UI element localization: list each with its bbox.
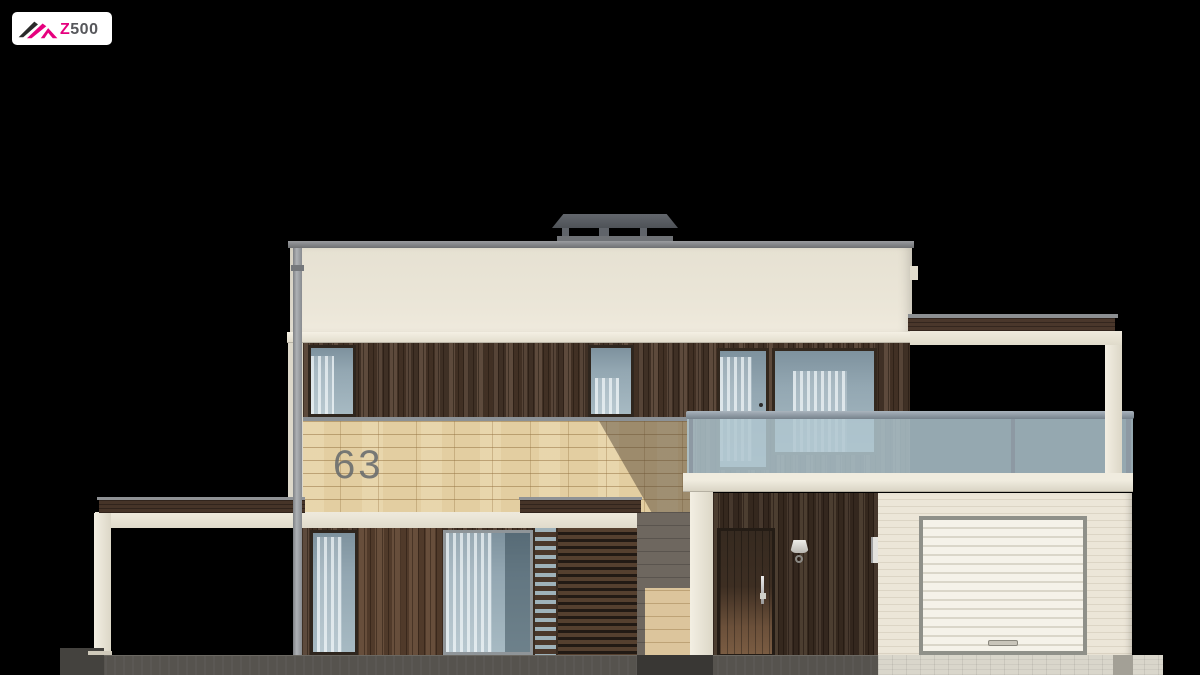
balcony-slab [683,473,1133,492]
pergola-post [1105,345,1122,473]
downspout-pipe [293,248,302,657]
garage-door [919,516,1087,655]
driveway-curb [1113,655,1133,675]
pergola-beam [910,331,1122,345]
logo-letter-z: Z [60,21,70,38]
lower-window-left-glass [313,533,355,652]
lower-window-sliding-curtain [446,533,492,652]
logo-number-500: 500 [70,21,98,38]
upper-window-left [308,345,356,417]
balustrade-post-right [1126,418,1131,473]
balustrade-handrail [686,411,1134,419]
porch-side-wall-lit [645,588,690,655]
lower-window-left-curtain [317,537,342,652]
canvas: Z500 63 [0,0,1200,675]
upper-window-middle-glass [591,348,631,414]
garage-door-roller [923,520,1083,651]
front-door-lock [760,593,766,599]
pergola-fascia [908,318,1115,331]
slat-screen-open [533,528,558,655]
balcony-door-handle [759,403,763,407]
lower-window-sliding-reflection [505,533,530,652]
lower-window-sliding-glass [446,533,530,652]
downspout-bracket [291,265,304,271]
terrace-ground [60,655,878,675]
wall-step-detail [910,266,918,280]
entrance-lamp-ring [795,555,803,563]
garage-door-handle [988,640,1018,646]
canopy-beam [95,512,637,528]
z500-logo-text: Z500 [60,22,98,38]
porch-pillar [690,492,713,655]
louver-screen [558,528,637,655]
z500-roof-icon [17,17,59,41]
roof-edge [288,241,914,248]
upper-window-middle [588,345,634,417]
upper-window-left-glass [311,348,353,414]
carport-roof-fascia [99,500,305,513]
upper-window-left-curtain [311,356,334,414]
balustrade-glass [687,418,1133,473]
carport-curb [88,651,112,655]
z500-logo: Z500 [12,12,112,45]
canopy-right-fascia [520,500,641,513]
porch-ground-shadow [637,655,713,675]
front-door-handle [761,576,764,604]
front-door [717,528,775,657]
house-number: 63 [333,443,384,488]
balustrade-post-middle [1011,418,1015,473]
floor-slab-band [287,332,913,343]
sliding-shutter-panel [358,528,443,655]
lower-window-left [310,530,358,655]
chimney-cap [552,214,678,228]
parapet-wall [290,248,912,332]
upper-window-middle-curtain [595,378,619,414]
carport-post [94,513,111,657]
lower-window-sliding [443,530,533,655]
balustrade-post-left [689,418,693,473]
